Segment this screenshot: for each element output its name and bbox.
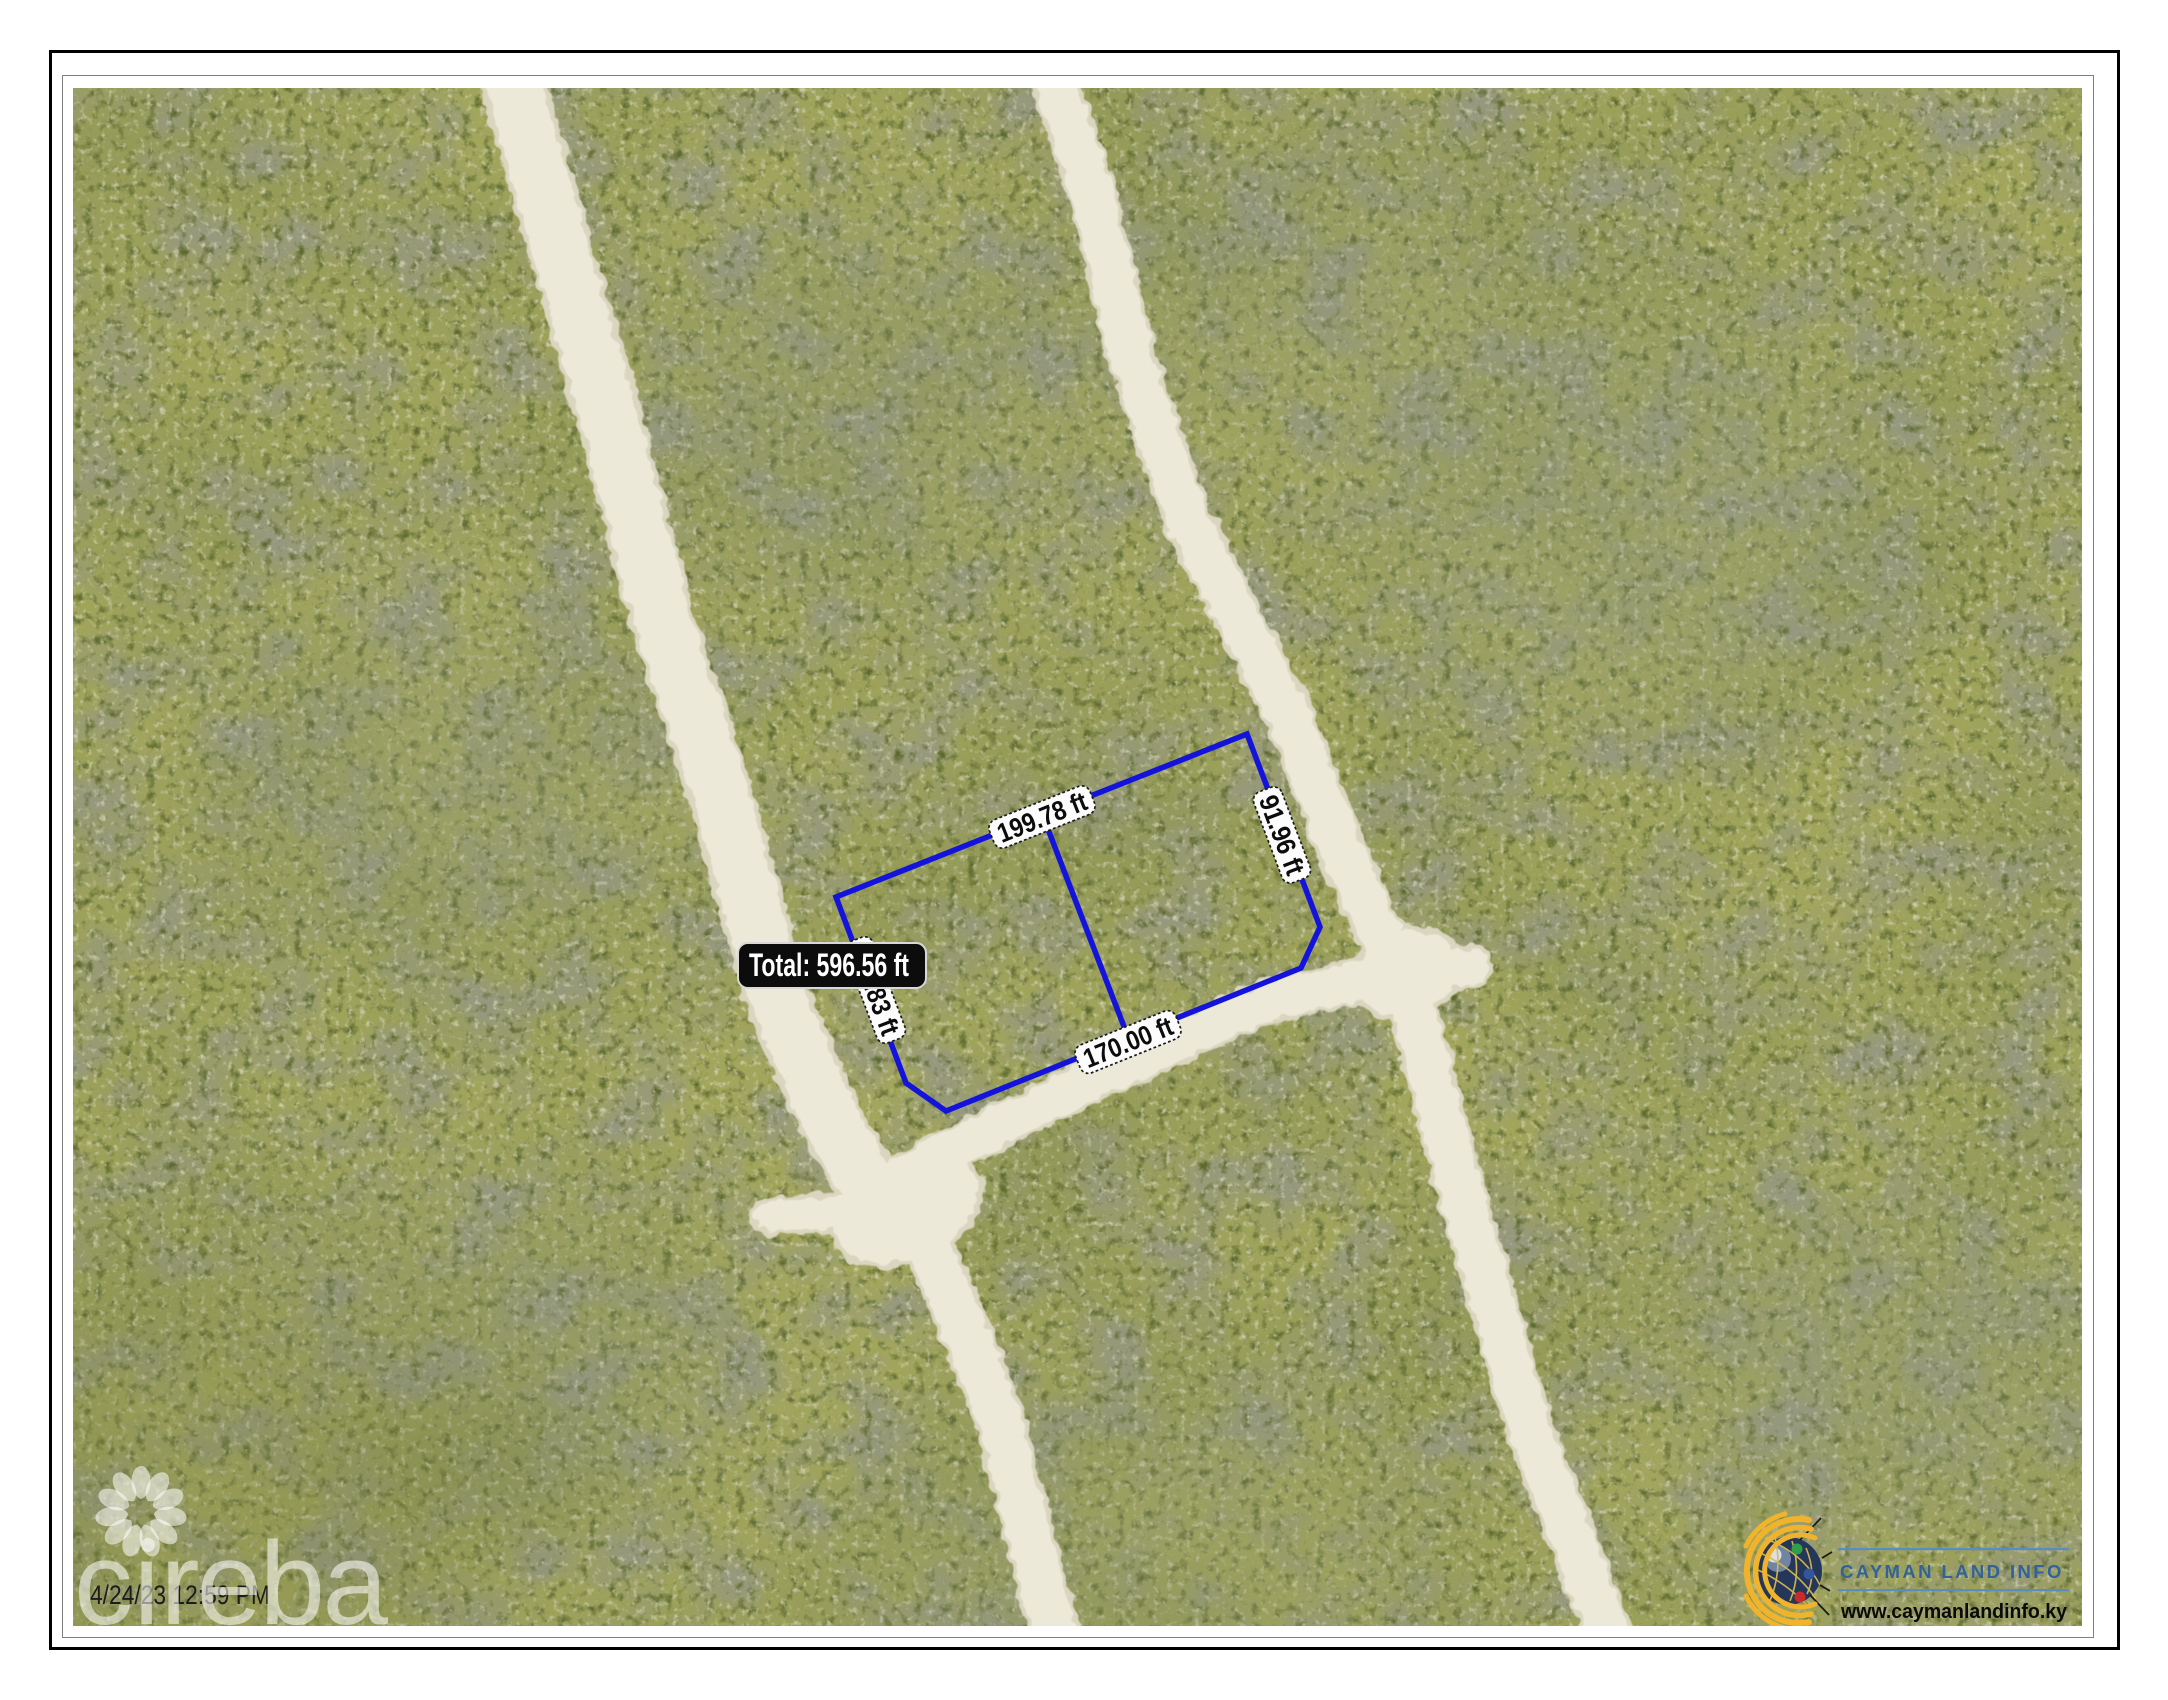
svg-text:CAYMAN LAND INFO: CAYMAN LAND INFO: [1840, 1561, 2064, 1582]
svg-text:www.caymanlandinfo.ky: www.caymanlandinfo.ky: [1840, 1600, 2068, 1623]
svg-text:Total: 596.56 ft: Total: 596.56 ft: [749, 947, 909, 983]
